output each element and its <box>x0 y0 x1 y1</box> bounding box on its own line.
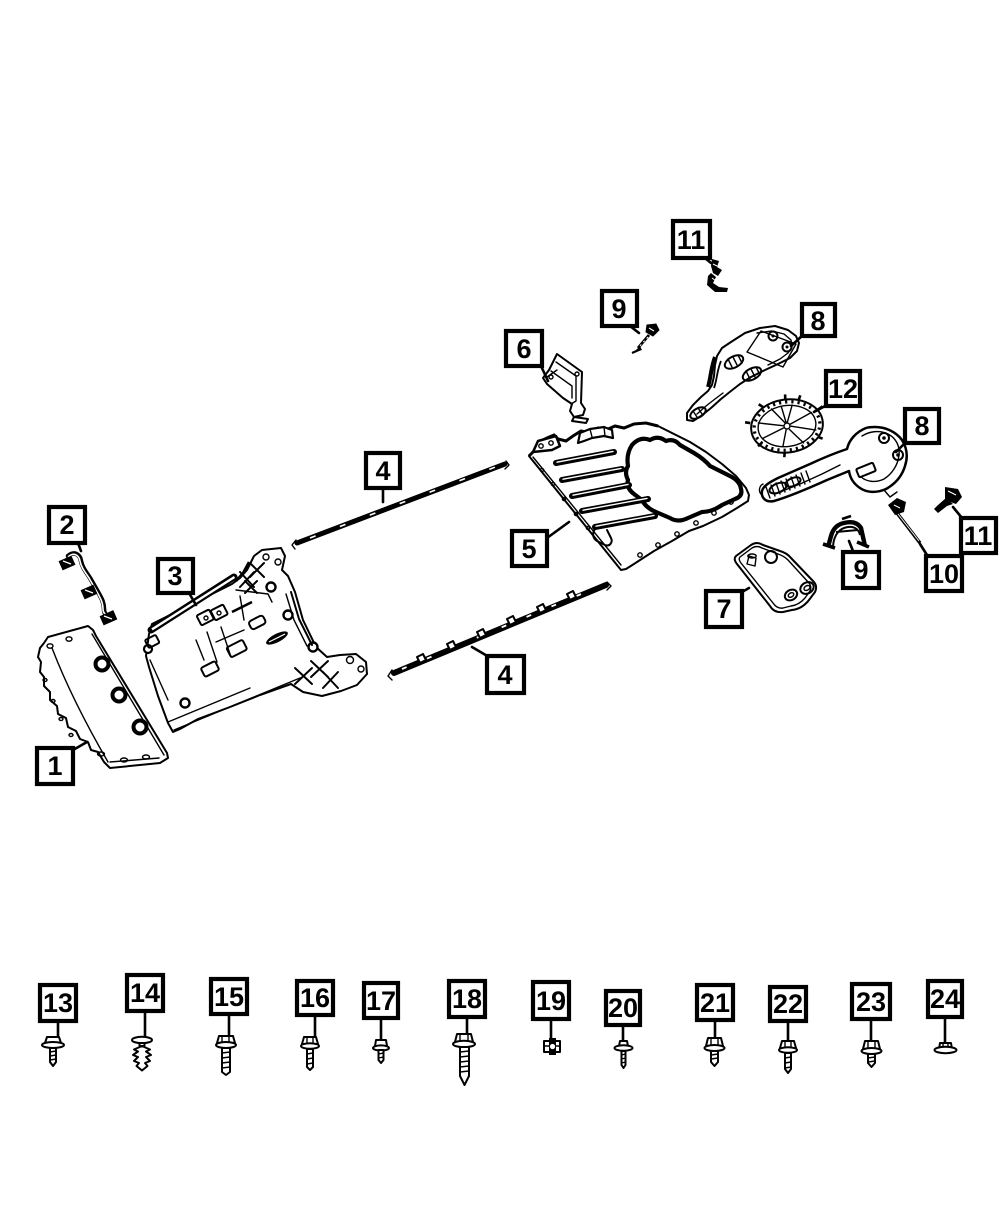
svg-text:4: 4 <box>375 456 390 486</box>
svg-text:4: 4 <box>497 660 512 690</box>
svg-text:13: 13 <box>43 988 73 1018</box>
svg-text:8: 8 <box>914 411 929 441</box>
svg-text:11: 11 <box>677 225 706 255</box>
svg-text:7: 7 <box>716 594 731 624</box>
svg-text:16: 16 <box>300 983 330 1013</box>
svg-text:8: 8 <box>810 306 825 336</box>
svg-text:3: 3 <box>167 561 182 591</box>
svg-text:14: 14 <box>130 978 160 1008</box>
svg-text:15: 15 <box>214 982 244 1012</box>
svg-text:19: 19 <box>536 986 566 1016</box>
svg-text:9: 9 <box>853 555 868 585</box>
svg-text:5: 5 <box>521 534 536 564</box>
svg-text:17: 17 <box>366 986 396 1016</box>
svg-text:1: 1 <box>47 751 62 781</box>
svg-text:10: 10 <box>929 559 959 589</box>
svg-text:21: 21 <box>700 988 730 1018</box>
svg-text:23: 23 <box>856 987 886 1017</box>
svg-text:24: 24 <box>930 984 960 1014</box>
svg-text:2: 2 <box>59 510 74 540</box>
svg-text:12: 12 <box>828 374 858 404</box>
svg-text:20: 20 <box>608 993 638 1023</box>
svg-text:9: 9 <box>611 294 626 324</box>
svg-text:22: 22 <box>773 989 803 1019</box>
svg-text:18: 18 <box>452 984 482 1014</box>
svg-text:6: 6 <box>516 334 531 364</box>
svg-text:11: 11 <box>964 521 993 551</box>
